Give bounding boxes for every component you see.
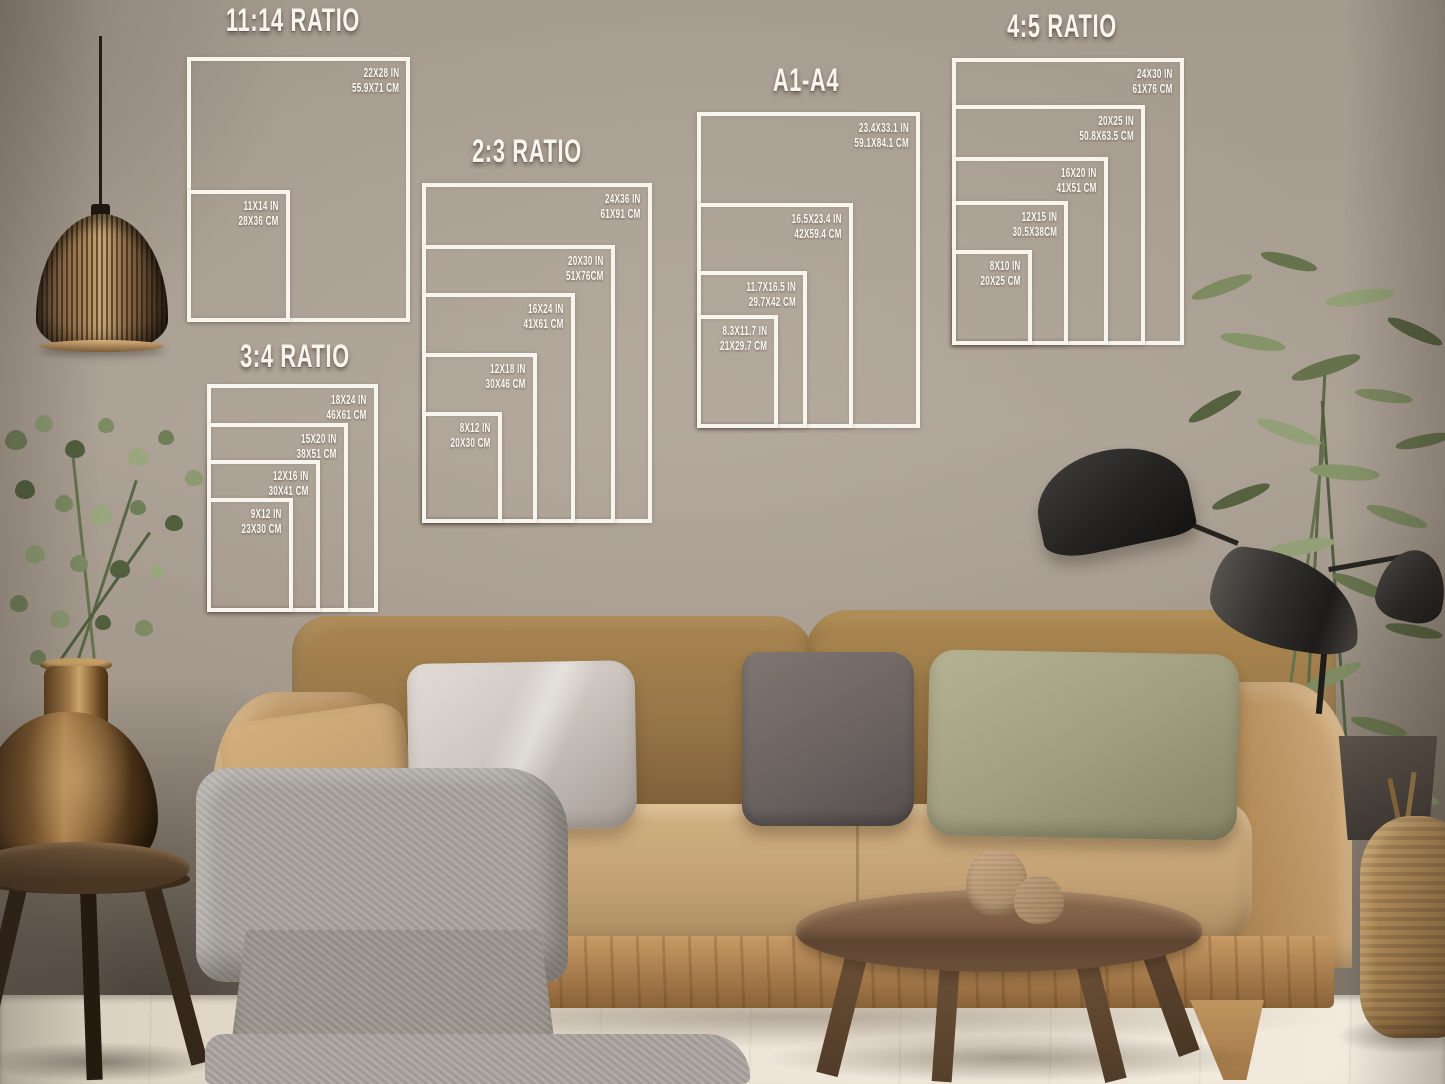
- size-cm: 50.8X63.5 CM: [1079, 128, 1134, 143]
- eucalyptus-leaf: [25, 545, 45, 563]
- size-inches: 12X16 IN: [269, 468, 309, 483]
- size-chart-3-4-ratio: 18X24 IN 46X61 CM 15X20 IN 38X51 CM 12X1…: [207, 384, 378, 612]
- size-chart-title-11-14: 11:14 RATIO: [226, 2, 360, 38]
- size-cm: 61X91 CM: [601, 206, 641, 221]
- size-inches: 22X28 IN: [352, 65, 399, 80]
- size-rect-a4: 8.3X11.7 IN 21X29.7 CM: [697, 315, 778, 428]
- size-inches: 12X15 IN: [1012, 209, 1057, 224]
- size-cm: 61X76 CM: [1133, 81, 1173, 96]
- size-inches: 12X18 IN: [486, 361, 526, 376]
- eucalyptus-leaf: [70, 555, 88, 572]
- size-cm: 28X36 CM: [239, 213, 279, 228]
- size-label: 23.4X33.1 IN 59.1X84.1 CM: [854, 120, 909, 150]
- ceramic-vase-small: [1014, 876, 1064, 924]
- eucalyptus-leaf: [95, 615, 111, 630]
- jute-floor-vase: [1360, 816, 1445, 1038]
- size-inches: 8X12 IN: [451, 420, 491, 435]
- eucalyptus-leaf: [110, 560, 130, 578]
- size-cm: 30X41 CM: [269, 483, 309, 498]
- eucalyptus-leaf: [55, 495, 73, 512]
- size-label: 16X24 IN 41X61 CM: [524, 301, 564, 331]
- size-inches: 16X20 IN: [1057, 165, 1097, 180]
- pendant-rim: [40, 340, 164, 352]
- size-label: 24X30 IN 61X76 CM: [1133, 66, 1173, 96]
- size-label: 15X20 IN 38X51 CM: [297, 431, 337, 461]
- size-label: 8X12 IN 20X30 CM: [451, 420, 491, 450]
- size-cm: 46X61 CM: [327, 407, 367, 422]
- eucalyptus-leaf: [128, 448, 148, 466]
- size-label: 16X20 IN 41X51 CM: [1057, 165, 1097, 195]
- charcoal-pillow: [742, 652, 914, 826]
- eucalyptus-leaf: [35, 415, 53, 432]
- eucalyptus-leaf: [130, 500, 146, 515]
- size-label: 9X12 IN 23X30 CM: [242, 506, 282, 536]
- size-rect-9x12: 9X12 IN 23X30 CM: [207, 498, 293, 612]
- size-inches: 11X14 IN: [239, 198, 279, 213]
- eucalyptus-leaf: [158, 430, 174, 445]
- size-chart-title-4-5: 4:5 RATIO: [1007, 8, 1117, 44]
- eucalyptus-leaf: [98, 418, 114, 433]
- size-cm: 41X61 CM: [524, 316, 564, 331]
- throw-blanket-pool: [205, 1034, 750, 1084]
- eucalyptus-leaf: [50, 610, 70, 628]
- size-inches: 20X25 IN: [1079, 113, 1134, 128]
- eucalyptus-leaf: [65, 440, 85, 458]
- size-label: 12X15 IN 30.5X38CM: [1012, 209, 1057, 239]
- eucalyptus-leaf: [165, 515, 183, 531]
- eucalyptus-leaf: [185, 470, 203, 486]
- living-room-mockup-photo: 11:14 RATIO 22X28 IN 55.9X71 CM 11X14 IN…: [0, 0, 1445, 1084]
- size-inches: 8X10 IN: [981, 258, 1021, 273]
- size-inches: 15X20 IN: [297, 431, 337, 446]
- eucalyptus-leaf: [150, 565, 164, 578]
- size-cm: 30X46 CM: [486, 376, 526, 391]
- size-label: 12X16 IN 30X41 CM: [269, 468, 309, 498]
- size-label: 22X28 IN 55.9X71 CM: [352, 65, 399, 95]
- size-chart-11-14-ratio: 22X28 IN 55.9X71 CM 11X14 IN 28X36 CM: [187, 57, 410, 322]
- eucalyptus-leaf: [135, 620, 153, 636]
- size-label: 18X24 IN 46X61 CM: [327, 392, 367, 422]
- size-cm: 23X30 CM: [242, 521, 282, 536]
- pendant-cord: [99, 36, 102, 218]
- size-cm: 20X25 CM: [981, 273, 1021, 288]
- size-cm: 21X29.7 CM: [720, 338, 767, 353]
- size-inches: 20X30 IN: [566, 253, 604, 268]
- size-inches: 24X36 IN: [601, 191, 641, 206]
- size-cm: 59.1X84.1 CM: [854, 135, 909, 150]
- size-inches: 16X24 IN: [524, 301, 564, 316]
- size-label: 20X25 IN 50.8X63.5 CM: [1079, 113, 1134, 143]
- size-cm: 55.9X71 CM: [352, 80, 399, 95]
- size-label: 20X30 IN 51X76CM: [566, 253, 604, 283]
- eucalyptus-leaf: [15, 480, 35, 499]
- size-cm: 30.5X38CM: [1012, 224, 1057, 239]
- size-rect-8x10: 8X10 IN 20X25 CM: [952, 250, 1032, 345]
- size-label: 24X36 IN 61X91 CM: [601, 191, 641, 221]
- size-label: 8X10 IN 20X25 CM: [981, 258, 1021, 288]
- size-label: 16.5X23.4 IN 42X59.4 CM: [792, 211, 842, 241]
- size-chart-2-3-ratio: 24X36 IN 61X91 CM 20X30 IN 51X76CM 16X24…: [422, 183, 652, 523]
- eucalyptus-leaf: [10, 595, 28, 612]
- size-cm: 20X30 CM: [451, 435, 491, 450]
- size-rect-8x12: 8X12 IN 20X30 CM: [422, 412, 502, 523]
- size-inches: 9X12 IN: [242, 506, 282, 521]
- size-chart-a1-a4: 23.4X33.1 IN 59.1X84.1 CM 16.5X23.4 IN 4…: [697, 112, 920, 428]
- size-inches: 18X24 IN: [327, 392, 367, 407]
- eucalyptus-leaf: [5, 430, 27, 450]
- size-label: 11X14 IN 28X36 CM: [239, 198, 279, 228]
- eucalyptus-leaf: [90, 505, 112, 525]
- size-chart-title-a1-a4: A1-A4: [773, 62, 839, 98]
- size-chart-4-5-ratio: 24X30 IN 61X76 CM 20X25 IN 50.8X63.5 CM …: [952, 58, 1184, 345]
- size-label: 8.3X11.7 IN 21X29.7 CM: [720, 323, 767, 353]
- size-cm: 41X51 CM: [1057, 180, 1097, 195]
- size-label: 11.7X16.5 IN 29.7X42 CM: [746, 279, 796, 309]
- size-inches: 24X30 IN: [1133, 66, 1173, 81]
- size-rect-11x14: 11X14 IN 28X36 CM: [187, 190, 290, 322]
- size-cm: 51X76CM: [566, 268, 604, 283]
- size-inches: 16.5X23.4 IN: [792, 211, 842, 226]
- size-inches: 11.7X16.5 IN: [746, 279, 796, 294]
- size-cm: 38X51 CM: [297, 446, 337, 461]
- sage-pillow: [926, 649, 1239, 840]
- size-chart-title-3-4: 3:4 RATIO: [240, 338, 350, 374]
- size-inches: 23.4X33.1 IN: [854, 120, 909, 135]
- size-cm: 29.7X42 CM: [746, 294, 796, 309]
- size-label: 12X18 IN 30X46 CM: [486, 361, 526, 391]
- size-chart-title-2-3: 2:3 RATIO: [472, 133, 582, 169]
- size-inches: 8.3X11.7 IN: [720, 323, 767, 338]
- size-cm: 42X59.4 CM: [792, 226, 842, 241]
